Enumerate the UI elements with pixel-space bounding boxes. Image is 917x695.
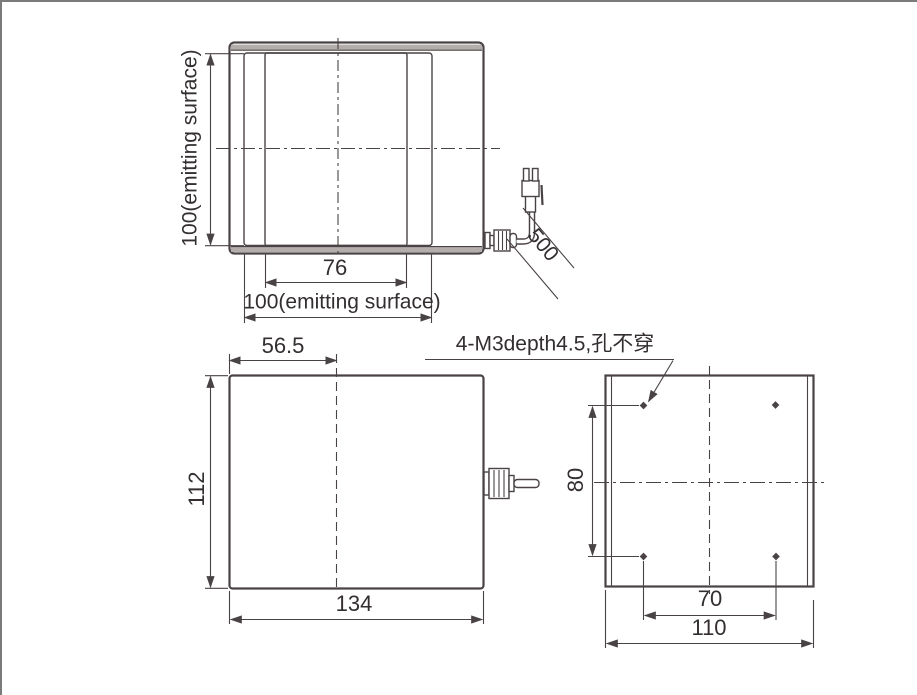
side-view bbox=[205, 354, 539, 624]
connector-prong-right bbox=[533, 169, 539, 182]
gland-cap bbox=[510, 234, 517, 248]
side-center-offset-label: 56.5 bbox=[262, 335, 305, 357]
front-inner-width-label: 76 bbox=[323, 257, 347, 279]
housing-bottom-band bbox=[231, 247, 482, 252]
front-view bbox=[205, 38, 574, 323]
mounting-note-label: 4-M3depth4.5,孔不穿 bbox=[456, 334, 654, 355]
side-gland-cap bbox=[509, 476, 514, 492]
back-hole-horizontal-pitch-label: 70 bbox=[698, 588, 722, 610]
back-width-label: 110 bbox=[691, 617, 726, 639]
cable-connector bbox=[522, 169, 543, 213]
side-width-label: 134 bbox=[336, 593, 373, 615]
housing-top-band bbox=[231, 45, 482, 50]
technical-drawing-page: 100(emitting surface) 76 100(emitting su… bbox=[0, 0, 917, 695]
side-height-label: 112 bbox=[186, 471, 208, 506]
connector-clip bbox=[542, 185, 543, 205]
cable-gland-side bbox=[484, 469, 539, 499]
connector-body bbox=[522, 181, 539, 197]
side-connector-pin bbox=[514, 480, 539, 488]
connector-prong-left bbox=[524, 169, 530, 182]
back-view bbox=[425, 360, 824, 649]
front-emitting-height-label: 100(emitting surface) bbox=[180, 49, 201, 246]
back-hole-vertical-pitch-label: 80 bbox=[565, 468, 587, 492]
connector-neck bbox=[526, 196, 536, 212]
side-body-outline bbox=[230, 376, 484, 589]
front-emitting-width-label: 100(emitting surface) bbox=[243, 292, 440, 313]
cable-gland-front bbox=[485, 230, 517, 251]
gland-collar bbox=[485, 233, 490, 249]
side-gland-collar bbox=[484, 472, 489, 495]
